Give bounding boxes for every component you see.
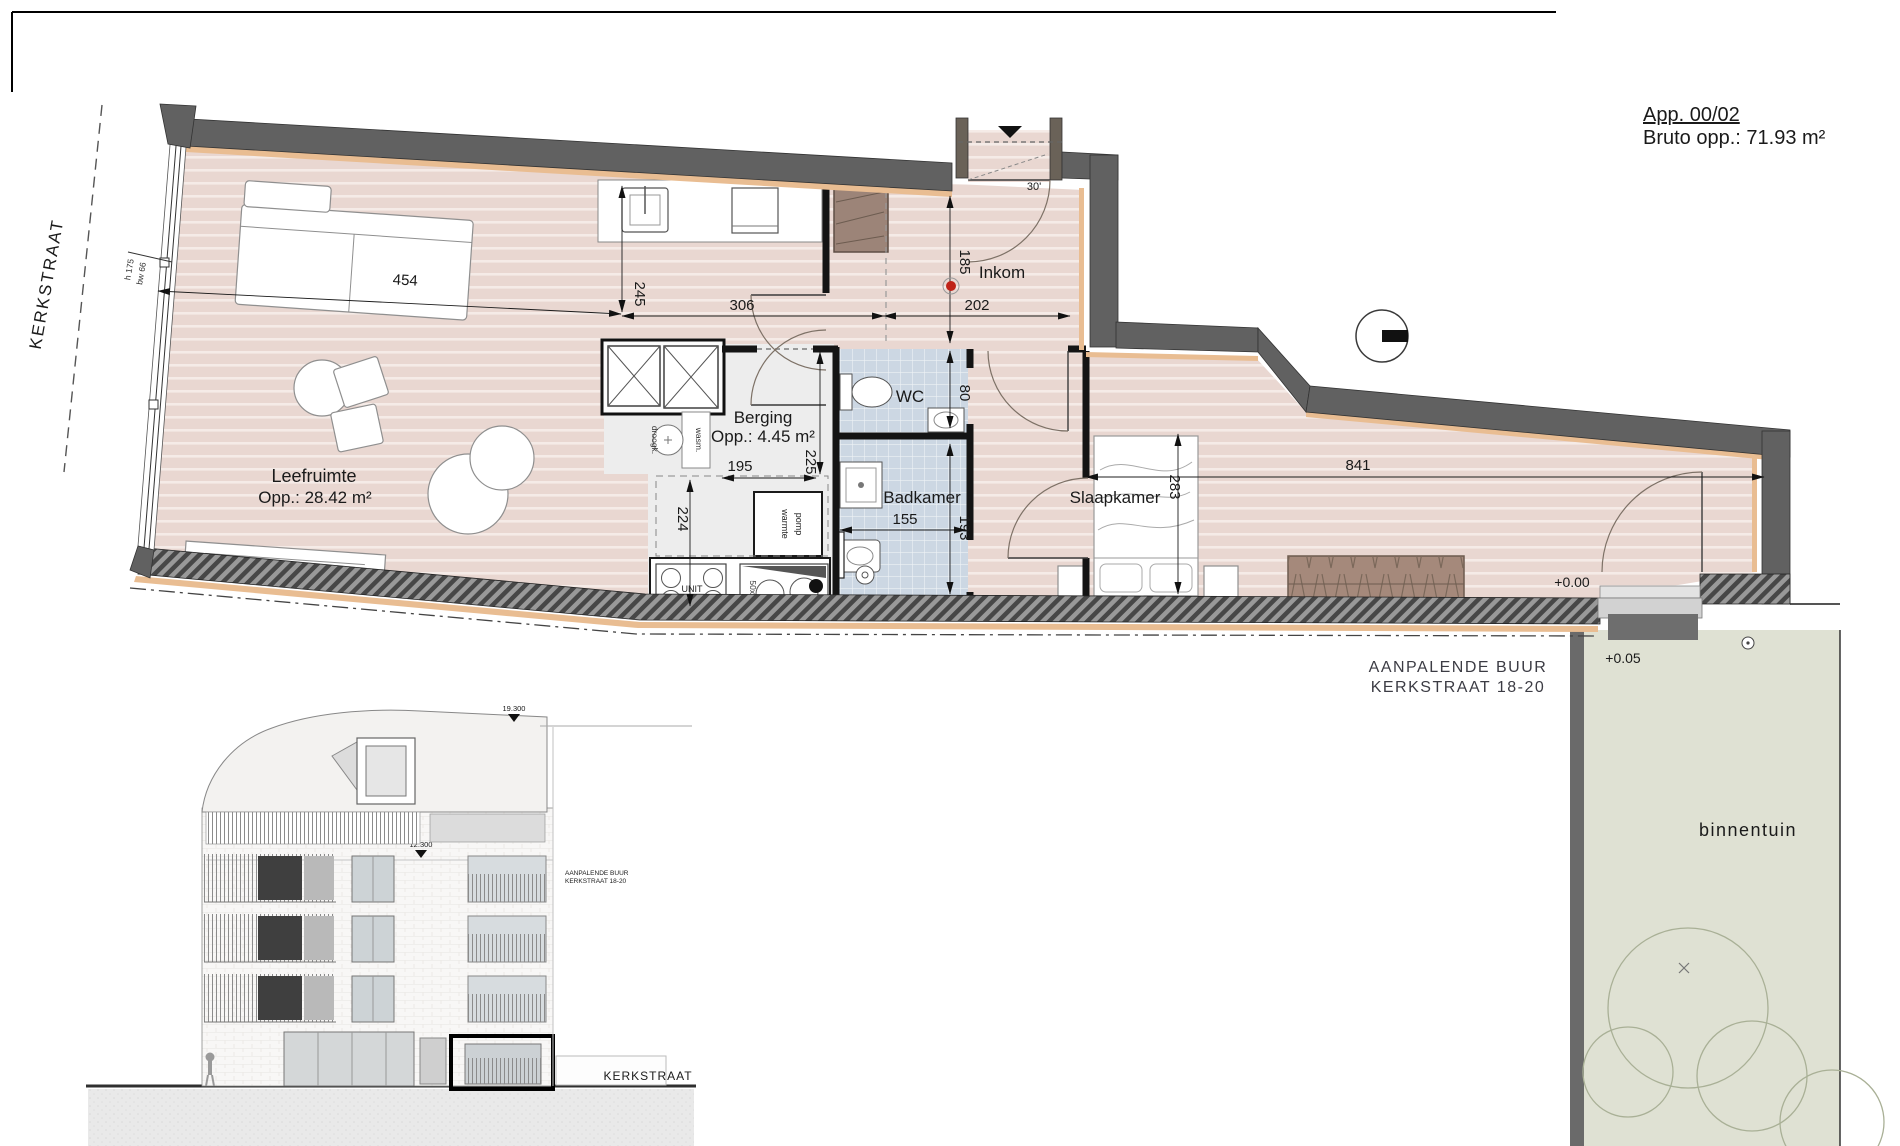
garden-left-wall <box>1570 628 1584 1146</box>
dim-80: 80 <box>956 385 973 402</box>
label-berging: Berging <box>734 408 793 427</box>
apartment-number: App. 00/02 <box>1643 104 1740 126</box>
dining-table-leaf <box>470 426 534 490</box>
north-marker <box>1356 310 1408 362</box>
street-side: KERKSTRAAT <box>26 105 102 472</box>
dim-155: 155 <box>892 511 917 528</box>
elevation-note-1: AANPALENDE BUUR <box>565 870 629 877</box>
armchair-2 <box>330 404 383 453</box>
floor-row <box>204 854 546 902</box>
dim-841: 841 <box>1345 457 1370 474</box>
wall-slaap-north <box>1116 322 1258 352</box>
shower <box>840 462 882 508</box>
floor-row <box>204 914 546 962</box>
dim-224: 224 <box>674 506 691 531</box>
dim-193: 193 <box>956 515 973 540</box>
dim-202: 202 <box>964 297 989 314</box>
heat-pump-label-2: pomp <box>794 513 804 536</box>
unit-highlight <box>451 1036 553 1089</box>
floor-row-ground <box>284 1032 446 1086</box>
floor-row <box>204 974 546 1022</box>
floor-plan-canvas: binnentuin +0.05 <box>0 0 1900 1146</box>
floor-plan-sheet: binnentuin +0.05 <box>0 0 1900 1146</box>
label-wc: WC <box>896 387 924 406</box>
porch-floor <box>968 130 1050 182</box>
garden: binnentuin +0.05 <box>1570 604 1884 1146</box>
street-label-elevation: KERKSTRAAT <box>603 1069 692 1083</box>
wall-corner-topleft <box>160 104 196 148</box>
shaft-ducts <box>602 340 724 414</box>
bed <box>1094 436 1198 596</box>
floors <box>148 130 1757 598</box>
sheet-border <box>12 12 1556 92</box>
wc-sink <box>928 408 964 432</box>
label-slaapkamer: Slaapkamer <box>1070 488 1161 507</box>
porch-stub-left <box>956 118 968 178</box>
kitchen-counter-top <box>598 180 822 242</box>
label-badkamer: Badkamer <box>883 488 961 507</box>
heat-pump: warmte pomp <box>754 492 822 556</box>
wall-corner-garden <box>1700 574 1790 604</box>
entry-closet <box>834 186 888 252</box>
level-19300: 19.300 <box>503 704 526 713</box>
terrace <box>206 812 545 844</box>
washer-label: wasm. <box>694 427 704 453</box>
dim-454: 454 <box>392 271 418 289</box>
label-berging-area: Opp.: 4.45 m² <box>711 427 815 446</box>
nightstand-right <box>1204 566 1238 598</box>
label-inkom: Inkom <box>979 263 1025 282</box>
elevation: KERKSTRAAT 19.300 12.300 AANPALENDE BUUR… <box>86 704 696 1146</box>
dim-225: 225 <box>802 449 819 474</box>
garden-level: +0.05 <box>1605 650 1641 666</box>
neighbor-line2: KERKSTRAAT 18-20 <box>1371 679 1546 696</box>
porch-stub-right <box>1050 118 1062 180</box>
window-note-h: h 175 <box>122 258 136 281</box>
garden-door-sill <box>1600 586 1700 598</box>
label-leefruimte: Leefruimte <box>271 466 356 486</box>
gross-area: Bruto opp.: 71.93 m² <box>1643 127 1826 149</box>
dim-195: 195 <box>727 458 752 475</box>
door-angle-label: 30' <box>1027 181 1041 193</box>
unit-label: UNIT <box>682 584 703 594</box>
elevation-ground <box>88 1089 694 1146</box>
elevation-note-2: KERKSTRAAT 18-20 <box>565 878 627 885</box>
label-leefruimte-area: Opp.: 28.42 m² <box>258 488 372 507</box>
dim-306: 306 <box>729 297 754 314</box>
hall-floor-symbol <box>856 566 874 584</box>
title-block: App. 00/02 Bruto opp.: 71.93 m² <box>1643 104 1826 149</box>
window-note-bw: bw 66 <box>134 261 148 285</box>
heat-pump-label-1: warmte <box>780 508 790 539</box>
dim-283: 283 <box>1166 474 1183 499</box>
level-ground-label: +0.00 <box>1554 574 1590 590</box>
point-black <box>809 579 823 593</box>
dryer-label: droogk. <box>650 426 660 454</box>
wall-corner-bottomleft <box>130 546 154 578</box>
boundary-dashed <box>64 105 102 472</box>
street-label-side: KERKSTRAAT <box>26 217 68 350</box>
neighbor-line1: AANPALENDE BUUR <box>1369 659 1548 676</box>
wall-inkom-east <box>1090 155 1118 347</box>
neighbor-note: AANPALENDE BUUR KERKSTRAAT 18-20 <box>1369 659 1548 696</box>
dim-245: 245 <box>631 281 648 306</box>
garden-label: binnentuin <box>1699 820 1797 840</box>
garden-step-inner <box>1608 614 1698 640</box>
dim-185: 185 <box>956 249 973 274</box>
